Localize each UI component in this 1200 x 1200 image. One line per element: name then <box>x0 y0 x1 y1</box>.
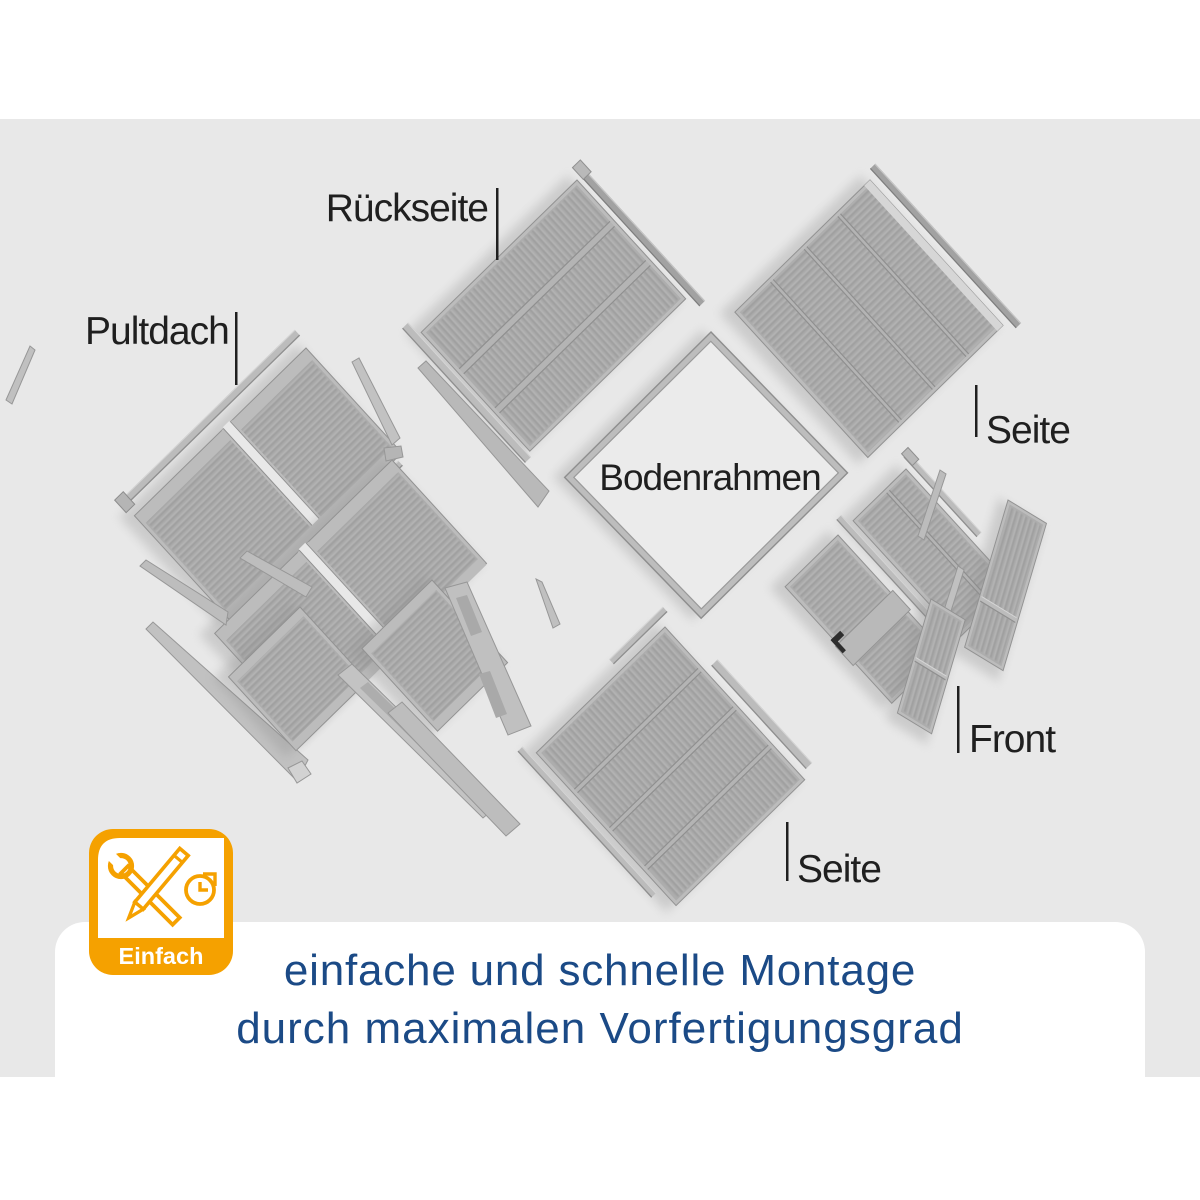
svg-text:einfache und schnelle Montage: einfache und schnelle Montage <box>284 946 916 995</box>
svg-text:Pultdach: Pultdach <box>85 310 229 353</box>
svg-text:Seite: Seite <box>986 409 1070 452</box>
svg-text:Bodenrahmen: Bodenrahmen <box>599 457 820 498</box>
svg-text:Einfach: Einfach <box>119 943 204 969</box>
svg-text:durch maximalen Vorfertigungsg: durch maximalen Vorfertigungsgrad <box>236 1004 964 1053</box>
svg-text:Front: Front <box>969 718 1056 761</box>
svg-text:Seite: Seite <box>797 848 881 891</box>
svg-text:Rückseite: Rückseite <box>326 187 488 230</box>
